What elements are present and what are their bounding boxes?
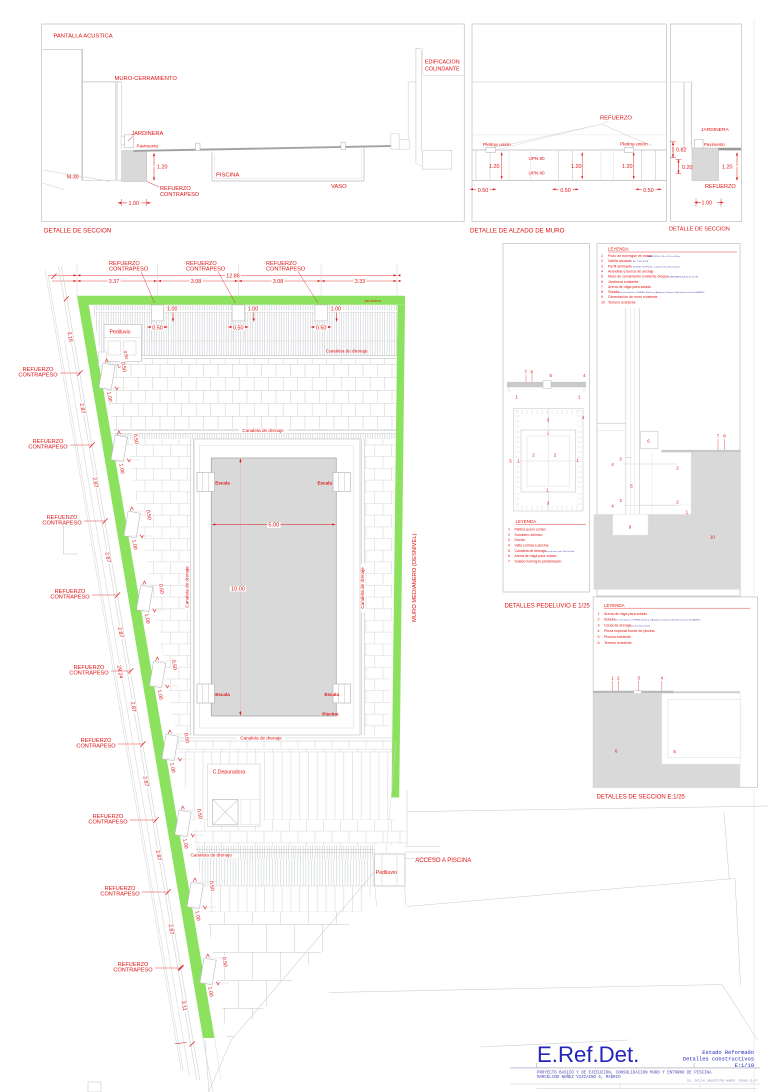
svg-text:M-30: M-30 xyxy=(67,175,79,181)
svg-text:12.86: 12.86 xyxy=(226,273,240,279)
svg-text:Arena de miga para solado: Arena de miga para solado xyxy=(604,612,647,616)
svg-text:6: 6 xyxy=(615,749,618,754)
svg-text:AC.T-500 Ø 3/8": AC.T-500 Ø 3/8" xyxy=(633,260,649,263)
svg-text:Detalles constructivos: Detalles constructivos xyxy=(683,1057,754,1063)
svg-text:1.00: 1.00 xyxy=(129,201,140,207)
svg-text:2: 2 xyxy=(508,533,510,537)
svg-text:Pletina unión: Pletina unión xyxy=(620,142,648,148)
svg-text:Gres Porcelánico COMPAC 40x40: Gres Porcelánico COMPAC 40x40 y el Adoqu… xyxy=(614,619,701,622)
svg-text:Piscina existente: Piscina existente xyxy=(604,635,631,639)
svg-text:1.20: 1.20 xyxy=(157,165,168,171)
svg-text:Canaleta de drenaje: Canaleta de drenaje xyxy=(360,567,365,609)
svg-text:Escala: Escala xyxy=(317,481,332,486)
svg-text:Escala: Escala xyxy=(324,692,339,697)
svg-text:2: 2 xyxy=(601,259,603,263)
svg-text:5: 5 xyxy=(598,635,600,639)
svg-text:0.50: 0.50 xyxy=(643,188,654,194)
svg-text:Arandela y tuerca de anclaje: Arandela y tuerca de anclaje xyxy=(608,269,654,273)
svg-text:Valla corrida a piscina: Valla corrida a piscina xyxy=(515,544,549,548)
svg-text:Pavimento: Pavimento xyxy=(704,142,725,147)
svg-text:DETALLES PEDELUVIO E 1/25: DETALLES PEDELUVIO E 1/25 xyxy=(505,604,591,610)
svg-text:CONTRAPESO: CONTRAPESO xyxy=(160,192,200,198)
svg-text:REFUERZO: REFUERZO xyxy=(705,184,736,190)
svg-text:7: 7 xyxy=(601,285,603,289)
svg-text:EDIFICACION: EDIFICACION xyxy=(425,59,460,65)
svg-text:0.50: 0.50 xyxy=(233,325,244,331)
svg-text:3.37: 3.37 xyxy=(109,279,120,285)
svg-text:sección libre mín. 300 cm2/ml: sección libre mín. 300 cm2/ml xyxy=(545,550,574,553)
svg-text:MURO MEDIANERO (DESNIVEL): MURO MEDIANERO (DESNIVEL) xyxy=(412,533,418,622)
svg-text:Estado Reformado: Estado Reformado xyxy=(702,1050,754,1056)
svg-text:Arena de miga para solado: Arena de miga para solado xyxy=(608,285,651,289)
svg-text:3: 3 xyxy=(598,623,600,627)
svg-text:Canaleta de drenaje: Canaleta de drenaje xyxy=(191,853,233,858)
svg-text:TERMOARCILLA 24 de 24 CM.: TERMOARCILLA 24 de 24 CM. xyxy=(668,276,699,279)
svg-text:LEYENDA: LEYENDA xyxy=(604,603,625,608)
svg-text:CONTRAPESO: CONTRAPESO xyxy=(42,521,82,527)
svg-text:Gres Porcelánico COMPAC 40x40: Gres Porcelánico COMPAC 40x40 y el Adoqu… xyxy=(618,291,705,294)
svg-text:LEYENDA: LEYENDA xyxy=(516,519,537,524)
svg-text:Perfil laminado: Perfil laminado xyxy=(608,264,632,268)
svg-text:5.00: 5.00 xyxy=(268,523,279,529)
svg-text:Pozo de hormigón en masa: Pozo de hormigón en masa xyxy=(608,254,652,258)
svg-text:C.Depuradora: C.Depuradora xyxy=(213,770,246,776)
svg-text:ACCESO A PISCINA: ACCESO A PISCINA xyxy=(415,858,471,864)
svg-text:JARDINERA: JARDINERA xyxy=(132,131,164,137)
svg-text:DETALLE DE SECCION: DETALLE DE SECCION xyxy=(669,227,730,233)
svg-text:PISCINA: PISCINA xyxy=(216,173,239,179)
svg-text:6: 6 xyxy=(601,280,603,284)
svg-text:Pavimento: Pavimento xyxy=(137,144,159,149)
svg-text:CONTRAPESO: CONTRAPESO xyxy=(100,892,140,898)
svg-text:Canaleta de drenaje: Canaleta de drenaje xyxy=(242,428,284,433)
svg-text:4: 4 xyxy=(508,544,510,548)
svg-text:CONTRAPESO: CONTRAPESO xyxy=(186,266,226,272)
svg-text:1.00: 1.00 xyxy=(702,201,713,207)
svg-text:Varilla roscada: Varilla roscada xyxy=(608,259,632,263)
svg-text:10: 10 xyxy=(710,535,716,540)
svg-text:Jardinera existente: Jardinera existente xyxy=(608,280,638,284)
svg-text:Escala: Escala xyxy=(215,692,230,697)
svg-text:CONTRAPESO: CONTRAPESO xyxy=(113,968,153,974)
svg-text:UPN 80: UPN 80 xyxy=(529,170,546,175)
svg-text:1.00: 1.00 xyxy=(331,307,342,313)
svg-text:CONTRAPESO: CONTRAPESO xyxy=(266,266,306,272)
svg-text:REFUERZO: REFUERZO xyxy=(600,116,632,122)
svg-text:E.Ref.Det.: E.Ref.Det. xyxy=(537,1042,639,1067)
svg-text:JARDINERA: JARDINERA xyxy=(701,127,729,133)
svg-text:1.00: 1.00 xyxy=(248,307,258,313)
svg-text:DETALLE DE SECCION: DETALLE DE SECCION xyxy=(44,228,111,235)
svg-text:COLINDANTE: COLINDANTE xyxy=(425,67,460,73)
svg-text:Canaleta de drenaje: Canaleta de drenaje xyxy=(185,566,190,608)
svg-text:8: 8 xyxy=(601,290,603,294)
svg-text:3: 3 xyxy=(601,264,603,268)
svg-text:1.20: 1.20 xyxy=(622,164,633,170)
svg-text:0.50: 0.50 xyxy=(316,325,327,331)
svg-text:0.20: 0.20 xyxy=(682,165,693,171)
svg-text:CONTRAPESO: CONTRAPESO xyxy=(50,595,90,601)
svg-text:Solado hormigón prefabricado: Solado hormigón prefabricado xyxy=(515,560,562,564)
svg-text:Escala: Escala xyxy=(215,481,230,486)
svg-text:2: 2 xyxy=(598,618,600,622)
svg-text:0.50: 0.50 xyxy=(560,188,571,194)
svg-text:1: 1 xyxy=(601,254,603,258)
svg-text:CONTRAPESO: CONTRAPESO xyxy=(69,671,109,677)
svg-text:Arena de miga para solado: Arena de miga para solado xyxy=(515,554,557,558)
svg-text:5: 5 xyxy=(673,749,676,754)
svg-text:Canal de drenaje: Canal de drenaje xyxy=(604,623,631,627)
svg-text:0.50: 0.50 xyxy=(152,325,163,331)
svg-text:10: 10 xyxy=(601,300,605,304)
svg-text:1.00: 1.00 xyxy=(167,307,178,313)
svg-text:9: 9 xyxy=(601,295,603,299)
svg-text:DETALLE DE ALZADO DE MURO: DETALLE DE ALZADO DE MURO xyxy=(470,228,565,235)
svg-text:CONTRAPESO: CONTRAPESO xyxy=(88,820,128,826)
svg-text:0.82: 0.82 xyxy=(676,148,687,154)
svg-text:Cimentación de muro existente: Cimentación de muro existente xyxy=(608,295,658,299)
svg-text:Terreno existente: Terreno existente xyxy=(604,641,632,645)
svg-text:7: 7 xyxy=(508,560,510,564)
svg-text:CONTRAPESO: CONTRAPESO xyxy=(109,266,149,272)
svg-text:DETALLES DE SECCION E:1/25: DETALLES DE SECCION E:1/25 xyxy=(597,795,686,801)
svg-text:3.08: 3.08 xyxy=(191,279,202,285)
svg-text:MURO-CERRAMIENTO: MURO-CERRAMIENTO xyxy=(115,76,178,82)
svg-text:Piscina: Piscina xyxy=(322,712,339,717)
svg-text:Sumidero sifónico: Sumidero sifónico xyxy=(515,533,543,537)
svg-text:5: 5 xyxy=(508,549,510,553)
svg-text:Canaleta de drenaje: Canaleta de drenaje xyxy=(515,549,547,553)
svg-text:CONTRAPESO: CONTRAPESO xyxy=(76,744,116,750)
svg-text:6: 6 xyxy=(508,554,510,558)
svg-text:Pieza especial borde de piscin: Pieza especial borde de piscina xyxy=(604,629,655,633)
svg-text:Canaleta de drenaje: Canaleta de drenaje xyxy=(326,349,368,354)
svg-text:1: 1 xyxy=(598,612,600,616)
svg-text:1.20: 1.20 xyxy=(722,165,733,171)
svg-text:6: 6 xyxy=(598,641,600,645)
svg-text:Pletina acero corten: Pletina acero corten xyxy=(515,528,546,532)
svg-text:S275JR 2xUPN-80 + imprimación: S275JR 2xUPN-80 + imprimación anticorros… xyxy=(633,265,680,268)
svg-text:1.20: 1.20 xyxy=(489,164,500,170)
svg-text:Canaleta de drenaje: Canaleta de drenaje xyxy=(240,736,282,741)
svg-text:5: 5 xyxy=(601,275,603,279)
svg-text:CONTRAPESO: CONTRAPESO xyxy=(18,373,58,379)
svg-text:0.50: 0.50 xyxy=(478,188,489,194)
svg-text:Pediluvio: Pediluvio xyxy=(110,330,131,336)
svg-text:4: 4 xyxy=(601,269,603,273)
svg-text:Jardinera: Jardinera xyxy=(364,298,381,303)
svg-text:Pletina unión: Pletina unión xyxy=(483,142,511,148)
svg-text:HA-25/P/20 1.20 x 1.20 x 0.80: HA-25/P/20 1.20 x 1.20 x 0.80 m xyxy=(648,255,680,258)
svg-text:Ducha: Ducha xyxy=(515,538,525,542)
svg-text:CONTRAPESO: CONTRAPESO xyxy=(28,445,68,451)
svg-text:Terreno existente: Terreno existente xyxy=(608,300,636,304)
svg-text:3.08: 3.08 xyxy=(273,279,284,285)
svg-text:LEYENDA: LEYENDA xyxy=(608,247,629,252)
svg-text:1.20: 1.20 xyxy=(571,164,582,170)
svg-text:MARCELINO NUÑEZ VIZCAINO 5, MA: MARCELINO NUÑEZ VIZCAINO 5, MADRID xyxy=(537,1075,621,1080)
svg-text:3: 3 xyxy=(508,538,510,542)
svg-text:Pediluvio: Pediluvio xyxy=(376,870,397,876)
svg-text:3.33: 3.33 xyxy=(355,279,366,285)
svg-text:sección 300 cm2/ml: sección 300 cm2/ml xyxy=(631,625,651,627)
svg-text:10.00: 10.00 xyxy=(231,586,245,592)
svg-text:PANTALLA ACUSTICA: PANTALLA ACUSTICA xyxy=(54,34,113,40)
svg-text:COL. OFICIAL ARQUITECTOS MADRI: COL. OFICIAL ARQUITECTOS MADRID VISADO 1… xyxy=(687,1079,757,1083)
svg-text:1: 1 xyxy=(508,528,510,532)
svg-text:VASO: VASO xyxy=(331,184,347,190)
svg-text:UPN 80: UPN 80 xyxy=(529,156,546,161)
svg-text:Muro de cerramiento existente: Muro de cerramiento existente bloque xyxy=(608,275,668,279)
svg-text:4: 4 xyxy=(598,629,600,633)
